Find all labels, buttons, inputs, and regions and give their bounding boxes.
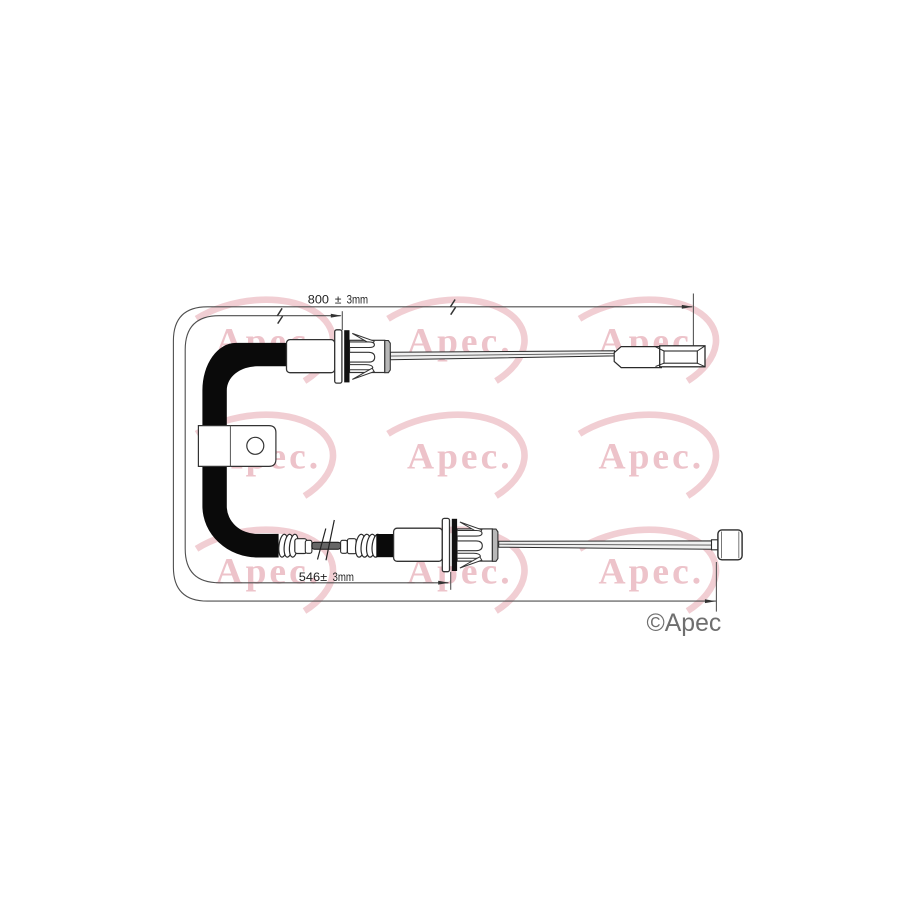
svg-text:800±3mm: 800±3mm [308, 293, 368, 307]
svg-text:546±3mm: 546±3mm [299, 570, 354, 584]
svg-text:©Apec: ©Apec [647, 610, 722, 637]
